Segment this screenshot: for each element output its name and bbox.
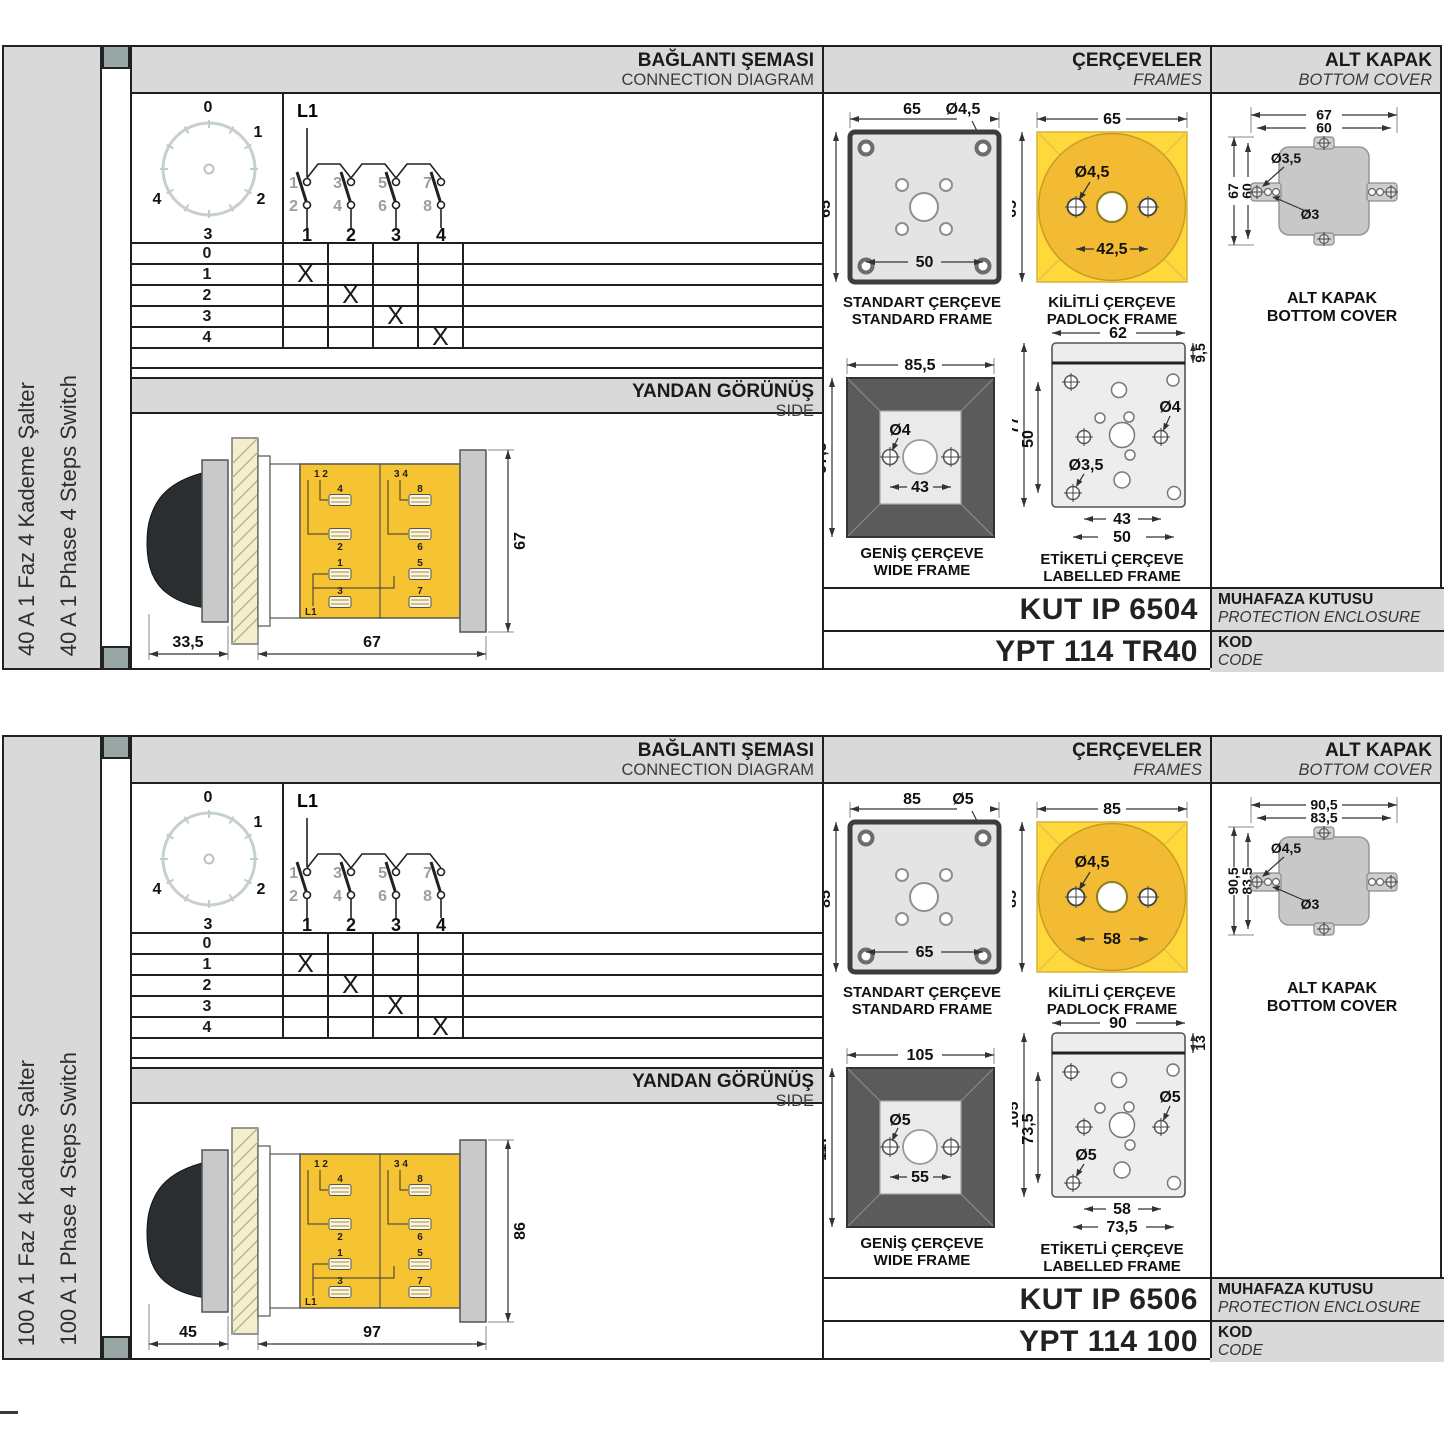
dial-position-1: 1 bbox=[254, 814, 263, 831]
frame-width-dim: 65 bbox=[1103, 111, 1121, 128]
panel-body: BAĞLANTI ŞEMASI CONNECTION DIAGRAM ÇERÇE… bbox=[130, 735, 1442, 1360]
step-mark bbox=[284, 328, 329, 347]
side-title: YANDAN GÖRÜNÜŞ bbox=[132, 381, 814, 402]
table-filler bbox=[464, 934, 822, 953]
frame-hole-dim: Ø3,5 bbox=[1069, 457, 1104, 474]
step-label: 4 bbox=[132, 1018, 284, 1037]
frame-pitch1-dim: 58 bbox=[1113, 1201, 1131, 1218]
table-row-empty bbox=[132, 349, 822, 369]
table-filler bbox=[464, 955, 822, 974]
step-mark bbox=[284, 286, 329, 305]
corner-marker bbox=[102, 735, 130, 759]
step-mark: X bbox=[329, 976, 374, 995]
side-view-area: 1 2 3 4 4 2 8 6 1 3 5 7 L1 67 bbox=[132, 414, 822, 668]
bottom-cover-drawing: 67 60 67 60 bbox=[1222, 97, 1442, 287]
side-title: YANDAN GÖRÜNÜŞ bbox=[132, 1071, 814, 1092]
enclosure-value: KUT IP 6506 bbox=[822, 1279, 1210, 1320]
code-label: KOD CODE bbox=[1210, 1322, 1444, 1362]
enclosure-value: KUT IP 6504 bbox=[822, 589, 1210, 630]
table-filler bbox=[464, 307, 822, 326]
step-label: 3 bbox=[132, 997, 284, 1016]
frame-hole-dim: Ø4,5 bbox=[946, 101, 981, 118]
header-bottom-cover: ALT KAPAK BOTTOM COVER bbox=[1210, 47, 1440, 92]
cover-width-inner: 60 bbox=[1316, 120, 1332, 136]
wide-frame-drawing: 85,5 97,5 Ø4 43 bbox=[822, 345, 1022, 545]
dial-position-0: 0 bbox=[204, 789, 213, 806]
step-mark bbox=[374, 265, 419, 284]
frame-width-dim: 65 bbox=[903, 101, 921, 118]
dial-position-2: 2 bbox=[257, 881, 266, 898]
contact-diagram-drawing: L1 1 3 5 7 2 4 6 bbox=[284, 92, 822, 242]
terminal-label: 6 bbox=[417, 1232, 423, 1243]
standard-frame-caption: STANDART ÇERÇEVESTANDARD FRAME bbox=[822, 984, 1022, 1018]
step-label: 4 bbox=[132, 328, 284, 347]
section-header-band: BAĞLANTI ŞEMASI CONNECTION DIAGRAM ÇERÇE… bbox=[132, 47, 1440, 94]
terminal-label: 8 bbox=[417, 484, 423, 495]
pole-number: 2 bbox=[346, 225, 356, 242]
frame-inner-height-dim: 73,5 bbox=[1020, 1113, 1037, 1144]
pole-number: 1 bbox=[302, 225, 312, 242]
terminal-number: 2 bbox=[289, 888, 298, 905]
terminal-label: 5 bbox=[417, 1248, 423, 1259]
terminal-label: 7 bbox=[417, 1276, 423, 1287]
table-filler bbox=[464, 976, 822, 995]
page-edge-mark bbox=[0, 1411, 18, 1414]
labelled-frame-drawing: 90 13 105 73,5 bbox=[1012, 1009, 1212, 1239]
terminal-pair-label: 3 4 bbox=[394, 469, 408, 480]
header-frames: ÇERÇEVELER FRAMES bbox=[822, 47, 1210, 92]
step-mark bbox=[329, 1018, 374, 1037]
terminal-number: 6 bbox=[378, 198, 387, 215]
corner-marker bbox=[102, 45, 130, 69]
frame-strip-dim: 9,5 bbox=[1192, 343, 1208, 363]
table-filler bbox=[464, 265, 822, 284]
side-view-band: YANDAN GÖRÜNÜŞ SIDE bbox=[132, 377, 822, 414]
step-mark: X bbox=[374, 307, 419, 326]
dial-position-1: 1 bbox=[254, 124, 263, 141]
padlock-frame-drawing: 85 85 Ø4,5 58 bbox=[1012, 787, 1212, 982]
terminal-number: 2 bbox=[289, 198, 298, 215]
side-view-band: YANDAN GÖRÜNÜŞ SIDE bbox=[132, 1067, 822, 1104]
header-title: ÇERÇEVELER bbox=[822, 740, 1202, 761]
frame-pitch2-dim: 50 bbox=[1113, 529, 1131, 546]
terminal-label: 5 bbox=[417, 558, 423, 569]
frame-pitch-dim: 50 bbox=[916, 254, 934, 271]
step-mark bbox=[374, 244, 419, 263]
table-row-empty bbox=[132, 1039, 822, 1059]
header-subtitle: FRAMES bbox=[822, 761, 1202, 779]
header-connection: BAĞLANTI ŞEMASI CONNECTION DIAGRAM bbox=[132, 47, 822, 92]
phase-label: L1 bbox=[297, 101, 318, 121]
height-dimension: 67 bbox=[512, 532, 529, 550]
terminal-number: 8 bbox=[423, 888, 432, 905]
frame-hole-dim: Ø4,5 bbox=[1075, 854, 1110, 871]
step-mark bbox=[374, 1018, 419, 1037]
section-divider bbox=[1210, 737, 1212, 1358]
code-label: KOD CODE bbox=[1210, 632, 1444, 672]
phase-label: L1 bbox=[305, 1297, 317, 1308]
table-filler bbox=[464, 997, 822, 1016]
frame-pitch2-dim: 73,5 bbox=[1106, 1219, 1137, 1236]
header-bottom-cover: ALT KAPAK BOTTOM COVER bbox=[1210, 737, 1440, 782]
terminal-number: 5 bbox=[378, 175, 387, 192]
terminal-number: 1 bbox=[289, 175, 298, 192]
cover-width-inner: 83,5 bbox=[1310, 810, 1337, 826]
depth-dimension: 45 bbox=[179, 1324, 197, 1341]
pole-number: 1 bbox=[302, 915, 312, 932]
frame-pitch-dim: 55 bbox=[911, 1169, 929, 1186]
step-mark bbox=[419, 244, 464, 263]
dial-position-3: 3 bbox=[204, 226, 213, 242]
terminal-number: 3 bbox=[333, 175, 342, 192]
frame-pitch-dim: 43 bbox=[911, 479, 929, 496]
terminal-number: 8 bbox=[423, 198, 432, 215]
contact-diagram-drawing: L1 1 3 5 7 2 4 6 bbox=[284, 782, 822, 932]
frame-pitch-dim: 42,5 bbox=[1096, 241, 1127, 258]
table-row: 3 X bbox=[132, 997, 822, 1018]
frame-height-dim: 65 bbox=[1012, 200, 1020, 218]
panel-body: BAĞLANTI ŞEMASI CONNECTION DIAGRAM ÇERÇE… bbox=[130, 45, 1442, 670]
bottom-cover-drawing: 90,5 83,5 90,5 83,5 bbox=[1222, 787, 1442, 977]
rotary-dial-drawing: 0 1 2 3 4 bbox=[132, 92, 282, 242]
frame-pitch-dim: 65 bbox=[916, 944, 934, 961]
header-title: BAĞLANTI ŞEMASI bbox=[132, 50, 814, 71]
frame-width-dim: 85 bbox=[903, 791, 921, 808]
header-subtitle: BOTTOM COVER bbox=[1210, 761, 1432, 779]
table-row: 3 X bbox=[132, 307, 822, 328]
dial-cell: 0 1 2 3 4 bbox=[132, 92, 284, 244]
side-view-drawing: 1 2 3 4 4 2 8 6 1 3 5 7 L1 67 bbox=[142, 416, 572, 666]
terminal-number: 3 bbox=[333, 865, 342, 882]
table-filler bbox=[464, 244, 822, 263]
step-label: 0 bbox=[132, 244, 284, 263]
product-sidebar: 100 A 1 Faz 4 Kademe Şalter 100 A 1 Phas… bbox=[2, 735, 102, 1360]
code-row: YPT 114 TR40 KOD CODE bbox=[822, 630, 1444, 672]
product-name-turkish: 40 A 1 Faz 4 Kademe Şalter bbox=[14, 382, 40, 656]
product-sidebar: 40 A 1 Faz 4 Kademe Şalter 40 A 1 Phase … bbox=[2, 45, 102, 670]
table-row: 0 bbox=[132, 934, 822, 955]
step-mark bbox=[284, 1018, 329, 1037]
step-mark bbox=[374, 955, 419, 974]
terminal-label: 7 bbox=[417, 586, 423, 597]
step-mark bbox=[419, 955, 464, 974]
step-mark bbox=[374, 328, 419, 347]
frame-width-dim: 105 bbox=[907, 1047, 934, 1064]
dial-position-0: 0 bbox=[204, 99, 213, 116]
cover-hole-dim: Ø3 bbox=[1301, 896, 1320, 912]
terminal-label: 2 bbox=[337, 542, 343, 553]
step-mark bbox=[374, 934, 419, 953]
terminal-label: 3 bbox=[337, 586, 343, 597]
table-row: 1 X bbox=[132, 955, 822, 976]
terminal-pair-label: 1 2 bbox=[314, 469, 328, 480]
terminal-label: 1 bbox=[337, 1248, 343, 1259]
enclosure-row: KUT IP 6504 MUHAFAZA KUTUSU PROTECTION E… bbox=[822, 587, 1444, 630]
product-panel: 40 A 1 Faz 4 Kademe Şalter 40 A 1 Phase … bbox=[2, 45, 1442, 670]
terminal-label: 3 bbox=[337, 1276, 343, 1287]
code-value: YPT 114 100 bbox=[822, 1322, 1210, 1362]
code-value: YPT 114 TR40 bbox=[822, 632, 1210, 672]
table-row: 0 bbox=[132, 244, 822, 265]
frame-hole-dim: Ø5 bbox=[952, 791, 973, 808]
step-mark bbox=[329, 997, 374, 1016]
cover-hole-dim: Ø3,5 bbox=[1271, 150, 1302, 166]
product-name-english: 100 A 1 Phase 4 Steps Switch bbox=[56, 1052, 82, 1346]
header-subtitle: BOTTOM COVER bbox=[1210, 71, 1432, 89]
header-subtitle: CONNECTION DIAGRAM bbox=[132, 71, 814, 89]
terminal-number: 7 bbox=[423, 175, 432, 192]
step-mark bbox=[329, 934, 374, 953]
dial-position-2: 2 bbox=[257, 191, 266, 208]
dial-cell: 0 1 2 3 4 bbox=[132, 782, 284, 934]
terminal-label: 4 bbox=[337, 1174, 343, 1185]
corner-marker bbox=[102, 646, 130, 670]
wide-frame-caption: GENİŞ ÇERÇEVEWIDE FRAME bbox=[822, 545, 1022, 579]
table-row: 2 X bbox=[132, 976, 822, 997]
section-divider bbox=[822, 47, 824, 668]
step-mark: X bbox=[419, 328, 464, 347]
step-mark: X bbox=[284, 955, 329, 974]
step-label: 2 bbox=[132, 286, 284, 305]
step-label: 2 bbox=[132, 976, 284, 995]
section-header-band: BAĞLANTI ŞEMASI CONNECTION DIAGRAM ÇERÇE… bbox=[132, 737, 1440, 784]
table-filler bbox=[464, 328, 822, 347]
corner-marker bbox=[102, 1336, 130, 1360]
step-mark bbox=[284, 307, 329, 326]
standard-frame-drawing: 85 Ø5 85 65 bbox=[822, 787, 1022, 982]
header-title: BAĞLANTI ŞEMASI bbox=[132, 740, 814, 761]
step-label: 0 bbox=[132, 934, 284, 953]
frame-strip-dim: 13 bbox=[1192, 1035, 1208, 1051]
terminal-pair-label: 3 4 bbox=[394, 1159, 408, 1170]
side-view-drawing: 1 2 3 4 4 2 8 6 1 3 5 7 L1 86 bbox=[142, 1106, 572, 1356]
pole-number: 2 bbox=[346, 915, 356, 932]
terminal-number: 6 bbox=[378, 888, 387, 905]
header-subtitle: FRAMES bbox=[822, 71, 1202, 89]
enclosure-label: MUHAFAZA KUTUSU PROTECTION ENCLOSURE bbox=[1210, 589, 1444, 630]
enclosure-row: KUT IP 6506 MUHAFAZA KUTUSU PROTECTION E… bbox=[822, 1277, 1444, 1320]
labelled-frame-caption: ETİKETLİ ÇERÇEVELABELLED FRAME bbox=[1007, 551, 1217, 585]
product-name-turkish: 100 A 1 Faz 4 Kademe Şalter bbox=[14, 1060, 40, 1346]
header-connection: BAĞLANTI ŞEMASI CONNECTION DIAGRAM bbox=[132, 737, 822, 782]
wide-frame-caption: GENİŞ ÇERÇEVEWIDE FRAME bbox=[822, 1235, 1022, 1269]
code-row: YPT 114 100 KOD CODE bbox=[822, 1320, 1444, 1362]
table-filler bbox=[464, 1018, 822, 1037]
frame-height-dim: 85 bbox=[1012, 890, 1020, 908]
side-view-area: 1 2 3 4 4 2 8 6 1 3 5 7 L1 86 bbox=[132, 1104, 822, 1358]
table-row: 4 X bbox=[132, 1018, 822, 1039]
bottom-cover-caption: ALT KAPAKBOTTOM COVER bbox=[1222, 980, 1442, 1016]
step-mark bbox=[419, 286, 464, 305]
header-title: ALT KAPAK bbox=[1210, 50, 1432, 71]
frame-inner-height-dim: 50 bbox=[1020, 430, 1037, 448]
table-row: 4 X bbox=[132, 328, 822, 349]
cover-hole-dim: Ø3 bbox=[1301, 206, 1320, 222]
phase-label: L1 bbox=[297, 791, 318, 811]
contact-cell: L1 1 3 5 7 2 4 6 bbox=[284, 782, 822, 934]
terminal-number: 1 bbox=[289, 865, 298, 882]
cover-hole-dim: Ø4,5 bbox=[1271, 840, 1302, 856]
step-mark bbox=[284, 976, 329, 995]
standard-frame-drawing: 65 Ø4,5 65 50 bbox=[822, 97, 1022, 292]
dial-position-4: 4 bbox=[153, 881, 162, 898]
header-title: ÇERÇEVELER bbox=[822, 50, 1202, 71]
terminal-number: 5 bbox=[378, 865, 387, 882]
step-mark bbox=[284, 997, 329, 1016]
labelled-frame-drawing: 62 9,5 77 50 bbox=[1012, 319, 1212, 549]
step-mark bbox=[329, 244, 374, 263]
step-mark: X bbox=[329, 286, 374, 305]
height-dimension: 86 bbox=[512, 1222, 529, 1240]
terminal-label: 2 bbox=[337, 1232, 343, 1243]
terminal-number: 4 bbox=[333, 888, 342, 905]
frame-hole-dim: Ø5 bbox=[1075, 1147, 1096, 1164]
pole-number: 3 bbox=[391, 915, 401, 932]
depth-dimension: 33,5 bbox=[172, 634, 203, 651]
section-divider bbox=[1210, 47, 1212, 668]
frame-hole-dim: Ø4,5 bbox=[1075, 164, 1110, 181]
body-dimension: 97 bbox=[363, 1324, 381, 1341]
header-frames: ÇERÇEVELER FRAMES bbox=[822, 737, 1210, 782]
frame-width-dim: 62 bbox=[1109, 325, 1127, 342]
terminal-pair-label: 1 2 bbox=[314, 1159, 328, 1170]
dial-position-4: 4 bbox=[153, 191, 162, 208]
step-mark bbox=[329, 328, 374, 347]
frame-hole-dim: Ø4 bbox=[1159, 399, 1180, 416]
step-mark bbox=[329, 307, 374, 326]
step-mark bbox=[419, 265, 464, 284]
frame-width-dim: 85 bbox=[1103, 801, 1121, 818]
step-label: 3 bbox=[132, 307, 284, 326]
step-mark: X bbox=[374, 997, 419, 1016]
frame-hole-dim: Ø5 bbox=[1159, 1089, 1180, 1106]
steps-table: 0 1 X 2 X bbox=[132, 244, 822, 369]
pole-number: 4 bbox=[436, 225, 446, 242]
step-mark: X bbox=[284, 265, 329, 284]
labelled-frame-caption: ETİKETLİ ÇERÇEVELABELLED FRAME bbox=[1007, 1241, 1217, 1275]
rotary-dial-drawing: 0 1 2 3 4 bbox=[132, 782, 282, 932]
standard-frame-caption: STANDART ÇERÇEVESTANDARD FRAME bbox=[822, 294, 1022, 328]
frame-pitch-dim: 58 bbox=[1103, 931, 1121, 948]
step-label: 1 bbox=[132, 265, 284, 284]
frame-hole-dim: Ø5 bbox=[889, 1112, 910, 1129]
step-mark: X bbox=[419, 1018, 464, 1037]
terminal-number: 7 bbox=[423, 865, 432, 882]
step-label: 1 bbox=[132, 955, 284, 974]
step-mark bbox=[419, 976, 464, 995]
frame-width-dim: 85,5 bbox=[904, 357, 935, 374]
dial-position-3: 3 bbox=[204, 916, 213, 932]
header-title: ALT KAPAK bbox=[1210, 740, 1432, 761]
terminal-number: 4 bbox=[333, 198, 342, 215]
frame-pitch1-dim: 43 bbox=[1113, 511, 1131, 528]
product-name-english: 40 A 1 Phase 4 Steps Switch bbox=[56, 375, 82, 656]
step-mark bbox=[419, 934, 464, 953]
pole-number: 3 bbox=[391, 225, 401, 242]
phase-label: L1 bbox=[305, 607, 317, 618]
terminal-label: 8 bbox=[417, 1174, 423, 1185]
product-panel: 100 A 1 Faz 4 Kademe Şalter 100 A 1 Phas… bbox=[2, 735, 1442, 1360]
padlock-frame-drawing: 65 65 Ø4,5 42,5 bbox=[1012, 97, 1212, 292]
header-subtitle: CONNECTION DIAGRAM bbox=[132, 761, 814, 779]
table-filler bbox=[464, 286, 822, 305]
terminal-label: 4 bbox=[337, 484, 343, 495]
section-divider bbox=[822, 737, 824, 1358]
steps-table: 0 1 X 2 X bbox=[132, 934, 822, 1059]
contact-cell: L1 1 3 5 7 2 4 6 bbox=[284, 92, 822, 244]
frame-hole-dim: Ø4 bbox=[889, 422, 910, 439]
body-dimension: 67 bbox=[363, 634, 381, 651]
terminal-label: 6 bbox=[417, 542, 423, 553]
table-row: 1 X bbox=[132, 265, 822, 286]
wide-frame-drawing: 105 117 Ø5 55 bbox=[822, 1035, 1022, 1235]
catalog-page: 40 A 1 Faz 4 Kademe Şalter 40 A 1 Phase … bbox=[0, 0, 1445, 1445]
bottom-cover-caption: ALT KAPAKBOTTOM COVER bbox=[1222, 290, 1442, 326]
pole-number: 4 bbox=[436, 915, 446, 932]
enclosure-label: MUHAFAZA KUTUSU PROTECTION ENCLOSURE bbox=[1210, 1279, 1444, 1320]
frame-width-dim: 90 bbox=[1109, 1015, 1127, 1032]
table-row: 2 X bbox=[132, 286, 822, 307]
terminal-label: 1 bbox=[337, 558, 343, 569]
